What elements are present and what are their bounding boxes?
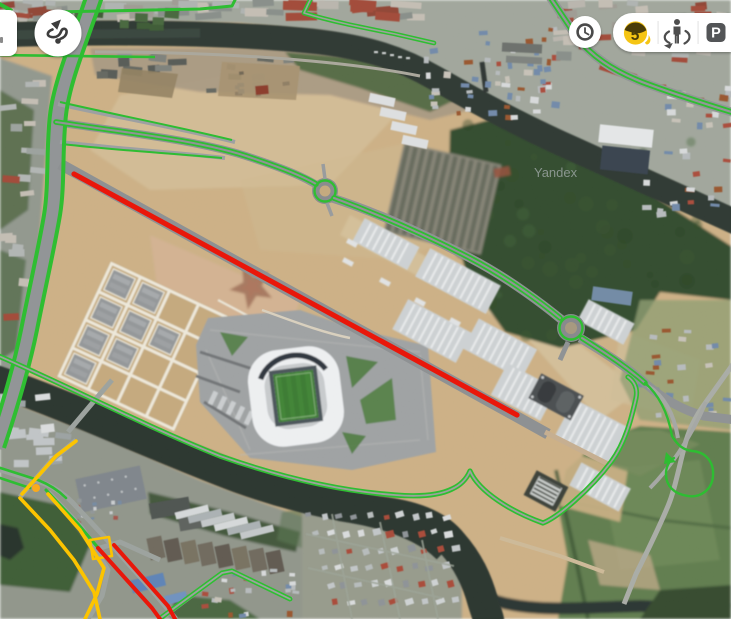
svg-text:P: P xyxy=(711,26,721,42)
svg-text:5: 5 xyxy=(631,27,640,44)
svg-text:Yandex: Yandex xyxy=(534,165,578,180)
